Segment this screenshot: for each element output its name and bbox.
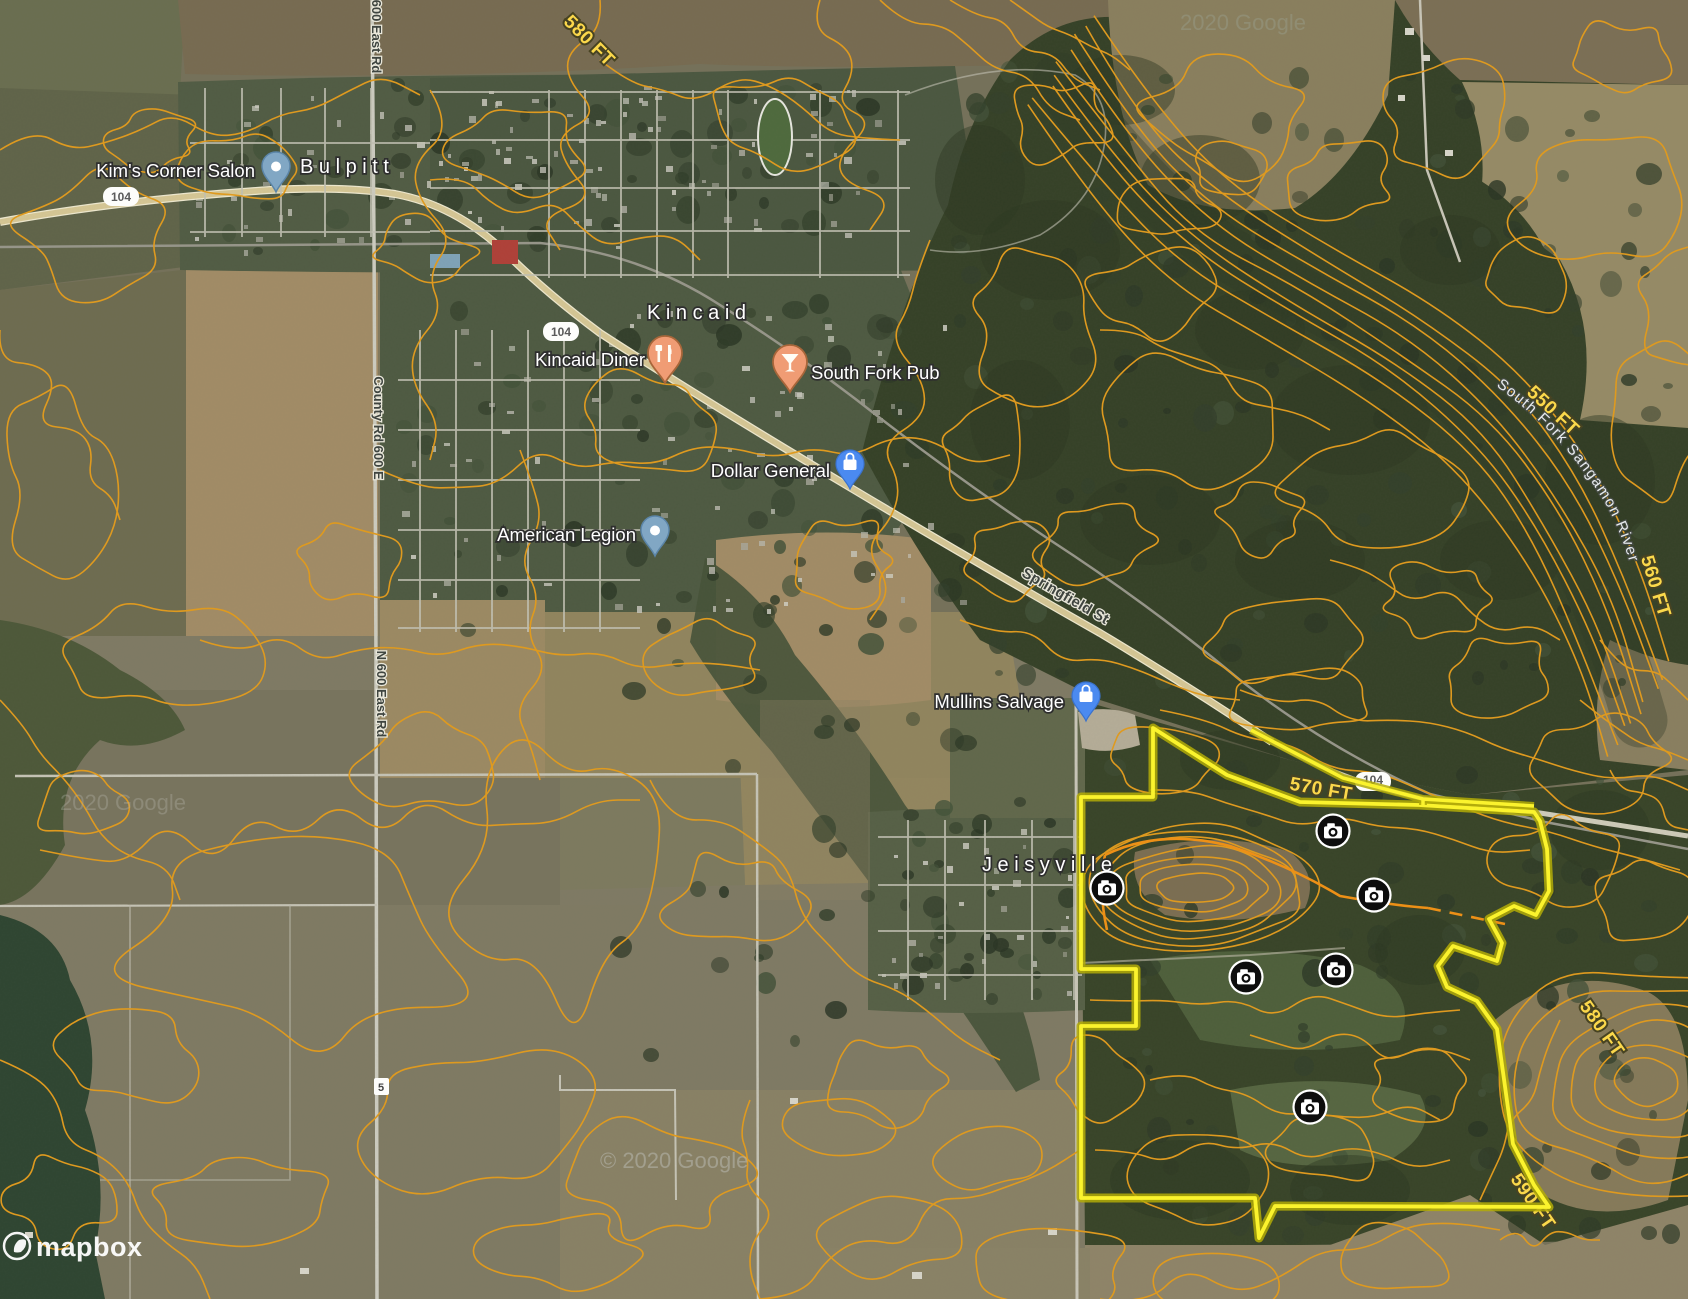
svg-text:B u l p i t t: B u l p i t t (300, 156, 389, 178)
svg-text:County Rd 600 E: County Rd 600 E (371, 376, 386, 480)
svg-text:mapbox: mapbox (36, 1232, 143, 1262)
svg-text:N 600 East Rd: N 600 East Rd (374, 651, 389, 738)
svg-text:Mullins Salvage: Mullins Salvage (934, 691, 1064, 712)
svg-text:N 600 East Rd: N 600 East Rd (369, 0, 384, 73)
svg-text:Kim's Corner Salon: Kim's Corner Salon (96, 160, 255, 181)
svg-text:104: 104 (551, 325, 571, 339)
svg-text:K i n c a i d: K i n c a i d (647, 302, 746, 324)
svg-text:American Legion: American Legion (497, 524, 636, 545)
svg-text:South Fork Pub: South Fork Pub (811, 362, 940, 383)
svg-text:2020 Google: 2020 Google (60, 790, 186, 815)
svg-text:J e i s y v i l l e: J e i s y v i l l e (982, 854, 1112, 876)
svg-text:104: 104 (111, 190, 131, 204)
svg-text:Kincaid Diner: Kincaid Diner (535, 349, 645, 370)
svg-text:2020 Google: 2020 Google (1180, 10, 1306, 35)
svg-text:© 2020 Google: © 2020 Google (600, 1148, 748, 1173)
svg-text:5: 5 (378, 1082, 384, 1094)
svg-text:Dollar General: Dollar General (711, 460, 830, 481)
